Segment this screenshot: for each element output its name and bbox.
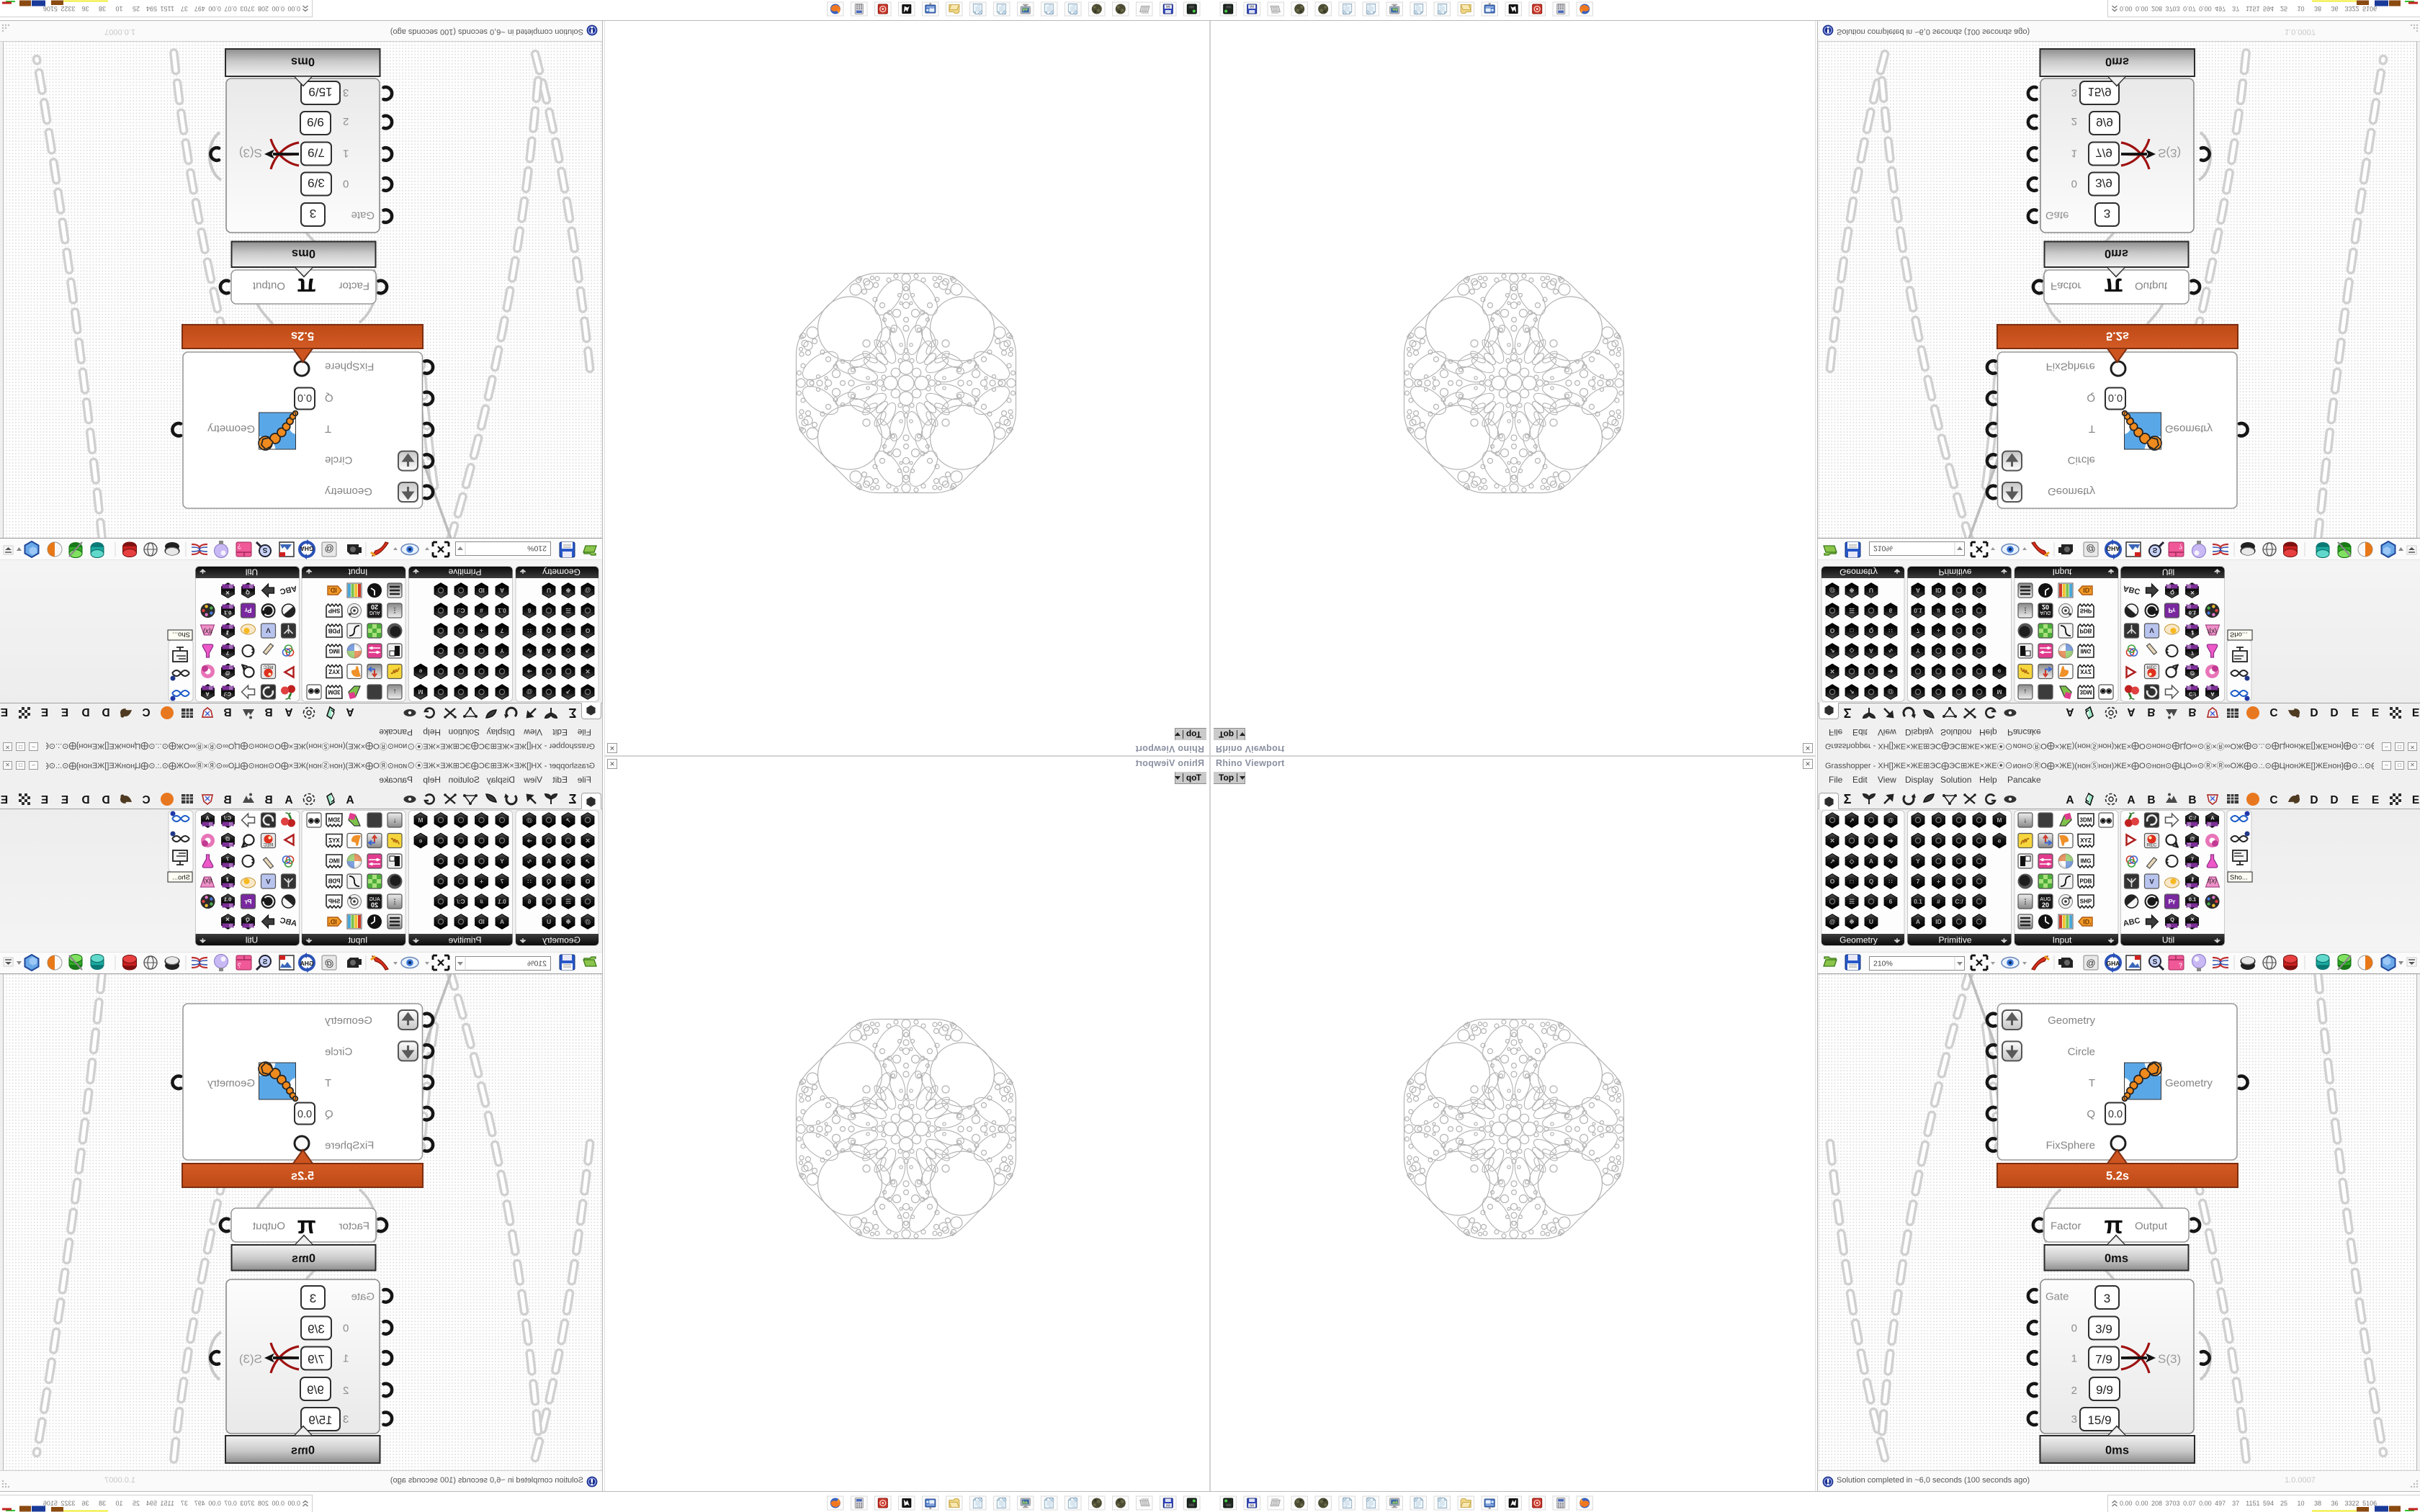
svg-text:@: @ [526, 816, 532, 824]
svg-text:5.2s: 5.2s [291, 1170, 314, 1183]
svg-text:0.1: 0.1 [2189, 896, 2196, 903]
svg-text:S: S [262, 958, 267, 966]
svg-text:↗: ↗ [1829, 647, 1834, 654]
svg-text:D: D [2330, 706, 2338, 718]
svg-text:M: M [418, 816, 423, 824]
svg-text:S(3): S(3) [2158, 146, 2181, 160]
svg-text:□: □ [566, 627, 570, 634]
svg-text:C:/: C:/ [223, 691, 231, 698]
svg-text:Q: Q [1869, 627, 1874, 634]
svg-text:❉: ❉ [1849, 587, 1855, 594]
svg-text:Geometry: Geometry [325, 1014, 372, 1027]
svg-text:E: E [2352, 706, 2359, 718]
svg-text:A: A [500, 587, 504, 594]
svg-text:⚷: ⚷ [225, 630, 230, 636]
svg-text:3/9: 3/9 [308, 176, 325, 190]
svg-text:S(3): S(3) [239, 1352, 262, 1366]
svg-text:1: 1 [343, 1353, 349, 1365]
svg-text:◉◉: ◉◉ [2100, 688, 2112, 696]
svg-text:SHP: SHP [2080, 608, 2092, 614]
svg-text:E: E [2412, 794, 2419, 806]
svg-text:0ms: 0ms [2105, 55, 2129, 68]
svg-text:Output: Output [2135, 1220, 2168, 1233]
svg-text:□: □ [1850, 627, 1853, 634]
svg-text:A: A [346, 706, 354, 718]
svg-text:↓: ↓ [393, 688, 397, 696]
svg-text:S(3): S(3) [239, 146, 262, 160]
svg-text:20: 20 [371, 603, 378, 611]
svg-text:Geometry: Geometry [207, 423, 255, 435]
svg-text:❉: ❉ [565, 587, 571, 594]
svg-text:FixSphere: FixSphere [325, 1140, 374, 1152]
svg-text:Y: Y [500, 647, 504, 654]
svg-text:S: S [262, 546, 267, 554]
svg-text:0.1: 0.1 [2189, 610, 2196, 616]
svg-text:Q: Q [246, 917, 250, 923]
svg-text:C:/: C:/ [223, 815, 231, 822]
svg-text:2: 2 [343, 115, 349, 127]
svg-text:#: # [1937, 607, 1940, 614]
svg-text:XYZ: XYZ [328, 837, 340, 844]
svg-text:Q: Q [2170, 917, 2174, 923]
svg-text:Primitive: Primitive [448, 935, 481, 945]
svg-text:A: A [500, 918, 504, 925]
svg-text:D: D [102, 794, 109, 806]
svg-text:Q: Q [2170, 590, 2174, 596]
svg-text:E: E [1, 794, 8, 806]
svg-text:+: + [1937, 627, 1940, 634]
svg-text:0ms: 0ms [291, 55, 315, 68]
svg-text:□: □ [1850, 878, 1853, 885]
svg-text:Gate: Gate [2045, 210, 2069, 222]
svg-text:PDB: PDB [328, 878, 340, 885]
svg-text:A: A [284, 794, 292, 806]
svg-text:E: E [61, 706, 68, 718]
svg-text:Factor: Factor [339, 280, 369, 292]
svg-text:C: C [2269, 706, 2277, 718]
svg-text:⋮: ⋮ [391, 606, 398, 614]
svg-text:✕: ✕ [1829, 667, 1834, 675]
svg-text:15/9: 15/9 [2087, 1413, 2111, 1427]
svg-text:↗: ↗ [565, 816, 570, 824]
svg-text:9/9: 9/9 [307, 1383, 324, 1397]
svg-text:0.1: 0.1 [498, 898, 506, 905]
svg-text:210%: 210% [527, 960, 547, 968]
svg-text:20: 20 [2042, 901, 2049, 909]
svg-text:Y: Y [500, 858, 504, 865]
svg-text:Q: Q [546, 627, 551, 634]
svg-text:3: 3 [310, 207, 316, 220]
svg-text:A: A [284, 706, 292, 718]
svg-text:Circle: Circle [2068, 1045, 2095, 1058]
svg-text:Σ: Σ [568, 706, 576, 720]
svg-text:U: U [1869, 918, 1873, 925]
svg-text:0ms: 0ms [291, 1444, 315, 1457]
svg-text:D: D [2310, 706, 2318, 718]
svg-text:V: V [266, 878, 271, 886]
svg-text:B: B [2147, 794, 2155, 806]
svg-text:ID: ID [1935, 587, 1942, 594]
svg-text:XYZ: XYZ [328, 668, 340, 675]
svg-text:REC: REC [2147, 843, 2157, 848]
svg-text:◇: ◇ [565, 647, 571, 654]
svg-text:∿: ∿ [1888, 858, 1893, 865]
svg-text:Gate: Gate [2045, 1290, 2069, 1302]
svg-text:Pr: Pr [244, 606, 251, 614]
svg-text:Gate: Gate [351, 210, 375, 222]
svg-text:∷: ∷ [1888, 878, 1893, 885]
svg-text:T: T [2089, 1077, 2095, 1089]
svg-text:D: D [2310, 794, 2318, 806]
svg-text:Geometry: Geometry [207, 1077, 255, 1089]
svg-text:?: ? [238, 543, 241, 550]
svg-text:π: π [297, 1212, 315, 1239]
svg-text:?: ? [2179, 543, 2182, 550]
svg-text:0ms: 0ms [292, 247, 315, 260]
svg-text:Util: Util [2162, 567, 2174, 577]
svg-text:REC: REC [263, 665, 273, 670]
svg-text:A: A [1916, 587, 1920, 594]
svg-text:Q: Q [1869, 878, 1874, 885]
svg-text:Input: Input [2053, 935, 2072, 945]
svg-text:V: V [2149, 626, 2154, 634]
svg-text:Geometry: Geometry [1839, 935, 1878, 945]
svg-text:↗: ↗ [565, 688, 570, 696]
svg-text:O: O [1830, 627, 1835, 634]
svg-text:3: 3 [310, 1292, 316, 1305]
svg-text:Q: Q [246, 590, 250, 596]
svg-text:Input: Input [348, 935, 367, 945]
svg-text:∷: ∷ [1888, 627, 1893, 634]
svg-text:✕: ✕ [225, 590, 230, 596]
svg-text:#: # [480, 607, 483, 614]
svg-text:3DM: 3DM [2080, 817, 2092, 824]
svg-text:Sho...: Sho... [2230, 631, 2248, 639]
svg-text:Σ: Σ [568, 792, 576, 806]
svg-text:@: @ [2086, 544, 2095, 554]
svg-text:Primitive: Primitive [448, 567, 481, 577]
svg-text:Q: Q [2087, 1108, 2095, 1120]
svg-text:A: A [547, 858, 551, 865]
svg-text:PDB: PDB [2080, 628, 2092, 634]
svg-text:0ms: 0ms [2105, 1444, 2129, 1457]
svg-text:✕: ✕ [585, 667, 590, 675]
svg-text:∿: ∿ [1888, 647, 1893, 654]
svg-text:IMG: IMG [328, 648, 339, 654]
svg-text:PDB: PDB [328, 628, 340, 634]
svg-text:Sho...: Sho... [172, 631, 190, 639]
svg-text:↓: ↓ [2024, 688, 2027, 696]
svg-text:↗: ↗ [1849, 816, 1854, 824]
svg-text:3: 3 [2104, 1292, 2110, 1305]
svg-text:E: E [41, 706, 48, 718]
svg-text:20: 20 [371, 901, 378, 909]
svg-text:0: 0 [343, 178, 349, 190]
svg-text:V: V [266, 626, 271, 634]
svg-text:9/9: 9/9 [2096, 1383, 2113, 1397]
svg-text:❉: ❉ [565, 918, 571, 925]
svg-text:3: 3 [2104, 207, 2110, 220]
svg-text:7/9: 7/9 [2095, 1353, 2112, 1367]
svg-text:M: M [418, 688, 423, 696]
svg-text:6: 6 [1889, 607, 1893, 614]
svg-text:Q: Q [325, 1108, 333, 1120]
svg-text:∷: ∷ [527, 878, 532, 885]
svg-text:M: M [1996, 816, 2002, 824]
svg-text:Q: Q [325, 392, 333, 404]
svg-text:Input: Input [348, 567, 367, 577]
svg-text:?: ? [238, 962, 241, 969]
svg-text:U: U [1869, 587, 1873, 594]
svg-text:210%: 210% [1873, 960, 1893, 968]
svg-text:7/9: 7/9 [308, 146, 325, 160]
svg-text:C:/: C:/ [457, 607, 465, 614]
svg-text:⋮: ⋮ [2022, 899, 2029, 906]
svg-text:3: 3 [2071, 86, 2077, 99]
svg-text:0.1: 0.1 [1914, 898, 1922, 905]
svg-text:◉◉: ◉◉ [2100, 817, 2112, 825]
svg-text:A: A [2066, 794, 2074, 806]
svg-text:3DM: 3DM [2080, 689, 2092, 696]
svg-text:C:/: C:/ [2189, 691, 2197, 698]
svg-text:+: + [1937, 878, 1940, 885]
svg-text:5.2s: 5.2s [291, 330, 314, 343]
svg-text:0.1: 0.1 [224, 896, 231, 903]
svg-text:O: O [585, 627, 590, 634]
svg-text:Sho...: Sho... [172, 874, 190, 882]
svg-text:1: 1 [2071, 1353, 2077, 1365]
svg-text:◉◉: ◉◉ [308, 688, 320, 696]
svg-text:@: @ [2190, 670, 2195, 677]
svg-text:9/9: 9/9 [307, 115, 324, 129]
svg-text:U: U [547, 918, 551, 925]
svg-text:E: E [2352, 794, 2359, 806]
svg-text:Geometry: Geometry [2165, 423, 2213, 435]
svg-text:15/9: 15/9 [2087, 85, 2111, 99]
svg-text:Geometry: Geometry [2165, 1077, 2213, 1089]
svg-text:7/9: 7/9 [308, 1353, 325, 1367]
svg-text:7: 7 [1917, 878, 1920, 885]
svg-text:☴: ☴ [1849, 898, 1855, 905]
svg-text:64: 64 [1250, 4, 1254, 8]
svg-text:Pr: Pr [2168, 606, 2175, 614]
svg-text:⋮: ⋮ [391, 899, 398, 906]
svg-text:A: A [1869, 858, 1873, 865]
svg-text:f(x): f(x) [203, 877, 212, 884]
svg-text:E: E [41, 794, 48, 806]
svg-text:20: 20 [2042, 603, 2049, 611]
svg-text:◉◉: ◉◉ [308, 817, 320, 825]
svg-text:↓: ↓ [393, 817, 397, 825]
svg-text:0.1: 0.1 [1914, 607, 1922, 614]
svg-text:Circle: Circle [325, 454, 352, 467]
svg-text:Util: Util [246, 567, 258, 577]
svg-text:ID.: ID. [328, 919, 337, 926]
svg-text:➔: ➔ [1888, 837, 1894, 845]
svg-text:0ms: 0ms [2105, 1252, 2128, 1265]
svg-text:+: + [480, 878, 483, 885]
svg-text:SHP: SHP [2080, 899, 2092, 905]
svg-text:IMG: IMG [2080, 648, 2091, 654]
svg-text:Geometry: Geometry [2048, 485, 2095, 498]
svg-text:Σ: Σ [1844, 706, 1852, 720]
svg-text:@: @ [2190, 835, 2195, 842]
svg-text:E: E [2372, 794, 2379, 806]
svg-text:❉: ❉ [1849, 918, 1855, 925]
svg-text:2: 2 [2071, 1385, 2077, 1397]
svg-text:Sho...: Sho... [2230, 874, 2248, 882]
svg-text:Factor: Factor [2051, 280, 2081, 292]
svg-text:Pr: Pr [244, 899, 251, 906]
svg-text:7: 7 [1917, 627, 1920, 634]
svg-text:⚷: ⚷ [225, 876, 230, 883]
svg-text:@: @ [225, 835, 230, 842]
svg-text:∿: ∿ [526, 647, 532, 654]
svg-text:π: π [297, 273, 315, 300]
svg-text:Gate: Gate [351, 1290, 375, 1302]
svg-text:1: 1 [2071, 148, 2077, 160]
svg-text:□: □ [566, 878, 570, 885]
svg-text:0: 0 [343, 1323, 349, 1335]
svg-text:@: @ [324, 544, 333, 554]
svg-text:SHP: SHP [328, 608, 340, 614]
svg-text:Geometry: Geometry [542, 567, 581, 577]
svg-text:Util: Util [2162, 935, 2174, 945]
svg-text:+: + [480, 627, 483, 634]
svg-text:#: # [480, 898, 483, 905]
svg-text:Circle: Circle [325, 1045, 352, 1058]
svg-text:e: e [1998, 837, 2002, 845]
svg-text:REC: REC [263, 843, 273, 848]
svg-text:f(x): f(x) [2208, 628, 2217, 635]
svg-text:O: O [585, 878, 590, 885]
svg-text:A: A [547, 647, 551, 654]
svg-text:e: e [418, 837, 422, 845]
svg-text:C:/: C:/ [457, 898, 465, 905]
svg-text:0.0: 0.0 [297, 392, 312, 403]
svg-text:3/9: 3/9 [308, 1323, 325, 1336]
svg-text:15/9: 15/9 [308, 85, 332, 99]
svg-text:7: 7 [226, 856, 229, 863]
svg-text:D: D [81, 794, 89, 806]
svg-text:3: 3 [2071, 1413, 2077, 1426]
svg-text:7: 7 [500, 627, 503, 634]
svg-text:C:/: C:/ [1955, 607, 1963, 614]
svg-text:1: 1 [343, 148, 349, 160]
svg-text:↗: ↗ [585, 858, 590, 865]
svg-text:ID: ID [1935, 918, 1942, 925]
svg-text:C:/: C:/ [1955, 898, 1963, 905]
svg-text:Σ: Σ [1844, 792, 1852, 806]
svg-text:0.0: 0.0 [297, 1109, 312, 1120]
svg-text:Geometry: Geometry [1839, 567, 1878, 577]
svg-text:A: A [2127, 706, 2135, 718]
svg-text:T: T [325, 1077, 331, 1089]
svg-text:A: A [2210, 815, 2215, 822]
svg-text:64: 64 [1166, 4, 1170, 8]
svg-text:C: C [142, 706, 150, 718]
svg-text:↗: ↗ [1829, 858, 1834, 865]
svg-text:✕: ✕ [225, 917, 230, 923]
svg-text:S: S [2153, 546, 2158, 554]
svg-text:D: D [102, 706, 109, 718]
svg-text:✕: ✕ [2190, 917, 2195, 923]
svg-text:Factor: Factor [2051, 1220, 2081, 1233]
svg-text:A: A [2210, 691, 2215, 698]
svg-text:☴: ☴ [1849, 607, 1855, 614]
svg-text:Geometry: Geometry [542, 935, 581, 945]
svg-text:Primitive: Primitive [1938, 935, 1971, 945]
svg-text:0ms: 0ms [2105, 247, 2128, 260]
svg-text:f(x): f(x) [2208, 877, 2217, 884]
svg-text:ID: ID [478, 918, 485, 925]
svg-text:↗: ↗ [585, 647, 590, 654]
svg-text:AUG: AUG [2040, 610, 2051, 615]
svg-text:f(x): f(x) [203, 628, 212, 635]
svg-text:7: 7 [226, 650, 229, 657]
svg-text:Geometry: Geometry [2048, 1014, 2095, 1027]
svg-text:3: 3 [343, 1413, 349, 1426]
svg-text:Output: Output [252, 280, 285, 292]
svg-text:B: B [2147, 706, 2155, 718]
svg-text:@: @ [225, 670, 230, 677]
svg-text:A: A [205, 815, 210, 822]
svg-text:3/9: 3/9 [2095, 176, 2112, 190]
svg-text:@: @ [585, 587, 591, 594]
svg-text:9/9: 9/9 [2096, 115, 2113, 129]
svg-text:D: D [81, 706, 89, 718]
svg-text:Q: Q [2087, 392, 2095, 404]
svg-text:@: @ [585, 918, 591, 925]
svg-text:6: 6 [1889, 898, 1893, 905]
svg-text:0: 0 [2071, 1323, 2077, 1335]
svg-text:GHA: GHA [300, 960, 314, 967]
svg-text:B: B [223, 794, 231, 806]
svg-text:7: 7 [500, 878, 503, 885]
svg-text:GHA: GHA [300, 545, 314, 552]
svg-text:3DM: 3DM [328, 689, 340, 696]
svg-text:✕: ✕ [1829, 837, 1834, 845]
svg-text:0: 0 [2071, 178, 2077, 190]
svg-text:3: 3 [343, 86, 349, 99]
svg-text:A: A [2127, 794, 2135, 806]
svg-text:E: E [2372, 706, 2379, 718]
svg-text:A: A [2066, 706, 2074, 718]
svg-text:✕: ✕ [585, 837, 590, 845]
svg-text:M: M [1996, 688, 2002, 696]
svg-text:D: D [2330, 794, 2338, 806]
svg-text:Geometry: Geometry [325, 485, 372, 498]
svg-text:3DM: 3DM [328, 817, 340, 824]
svg-text:π: π [2104, 273, 2123, 300]
svg-text:⋮: ⋮ [2022, 606, 2029, 614]
svg-text:Pr: Pr [2168, 899, 2175, 906]
svg-text:A: A [1869, 647, 1873, 654]
svg-text:3/9: 3/9 [2095, 1323, 2112, 1336]
svg-text:5.2s: 5.2s [2106, 1170, 2129, 1183]
svg-text:REC: REC [2147, 665, 2157, 670]
svg-text:B: B [2188, 794, 2196, 806]
svg-text:ID.: ID. [2083, 919, 2092, 926]
svg-text:0.0: 0.0 [2108, 392, 2123, 403]
svg-text:2: 2 [2071, 115, 2077, 127]
svg-text:6: 6 [527, 607, 531, 614]
svg-text:@: @ [526, 688, 532, 696]
svg-text:B: B [2188, 706, 2196, 718]
svg-text:0.0: 0.0 [2108, 1109, 2123, 1120]
svg-text:PDB: PDB [2080, 878, 2092, 885]
svg-text:@: @ [1888, 816, 1894, 824]
